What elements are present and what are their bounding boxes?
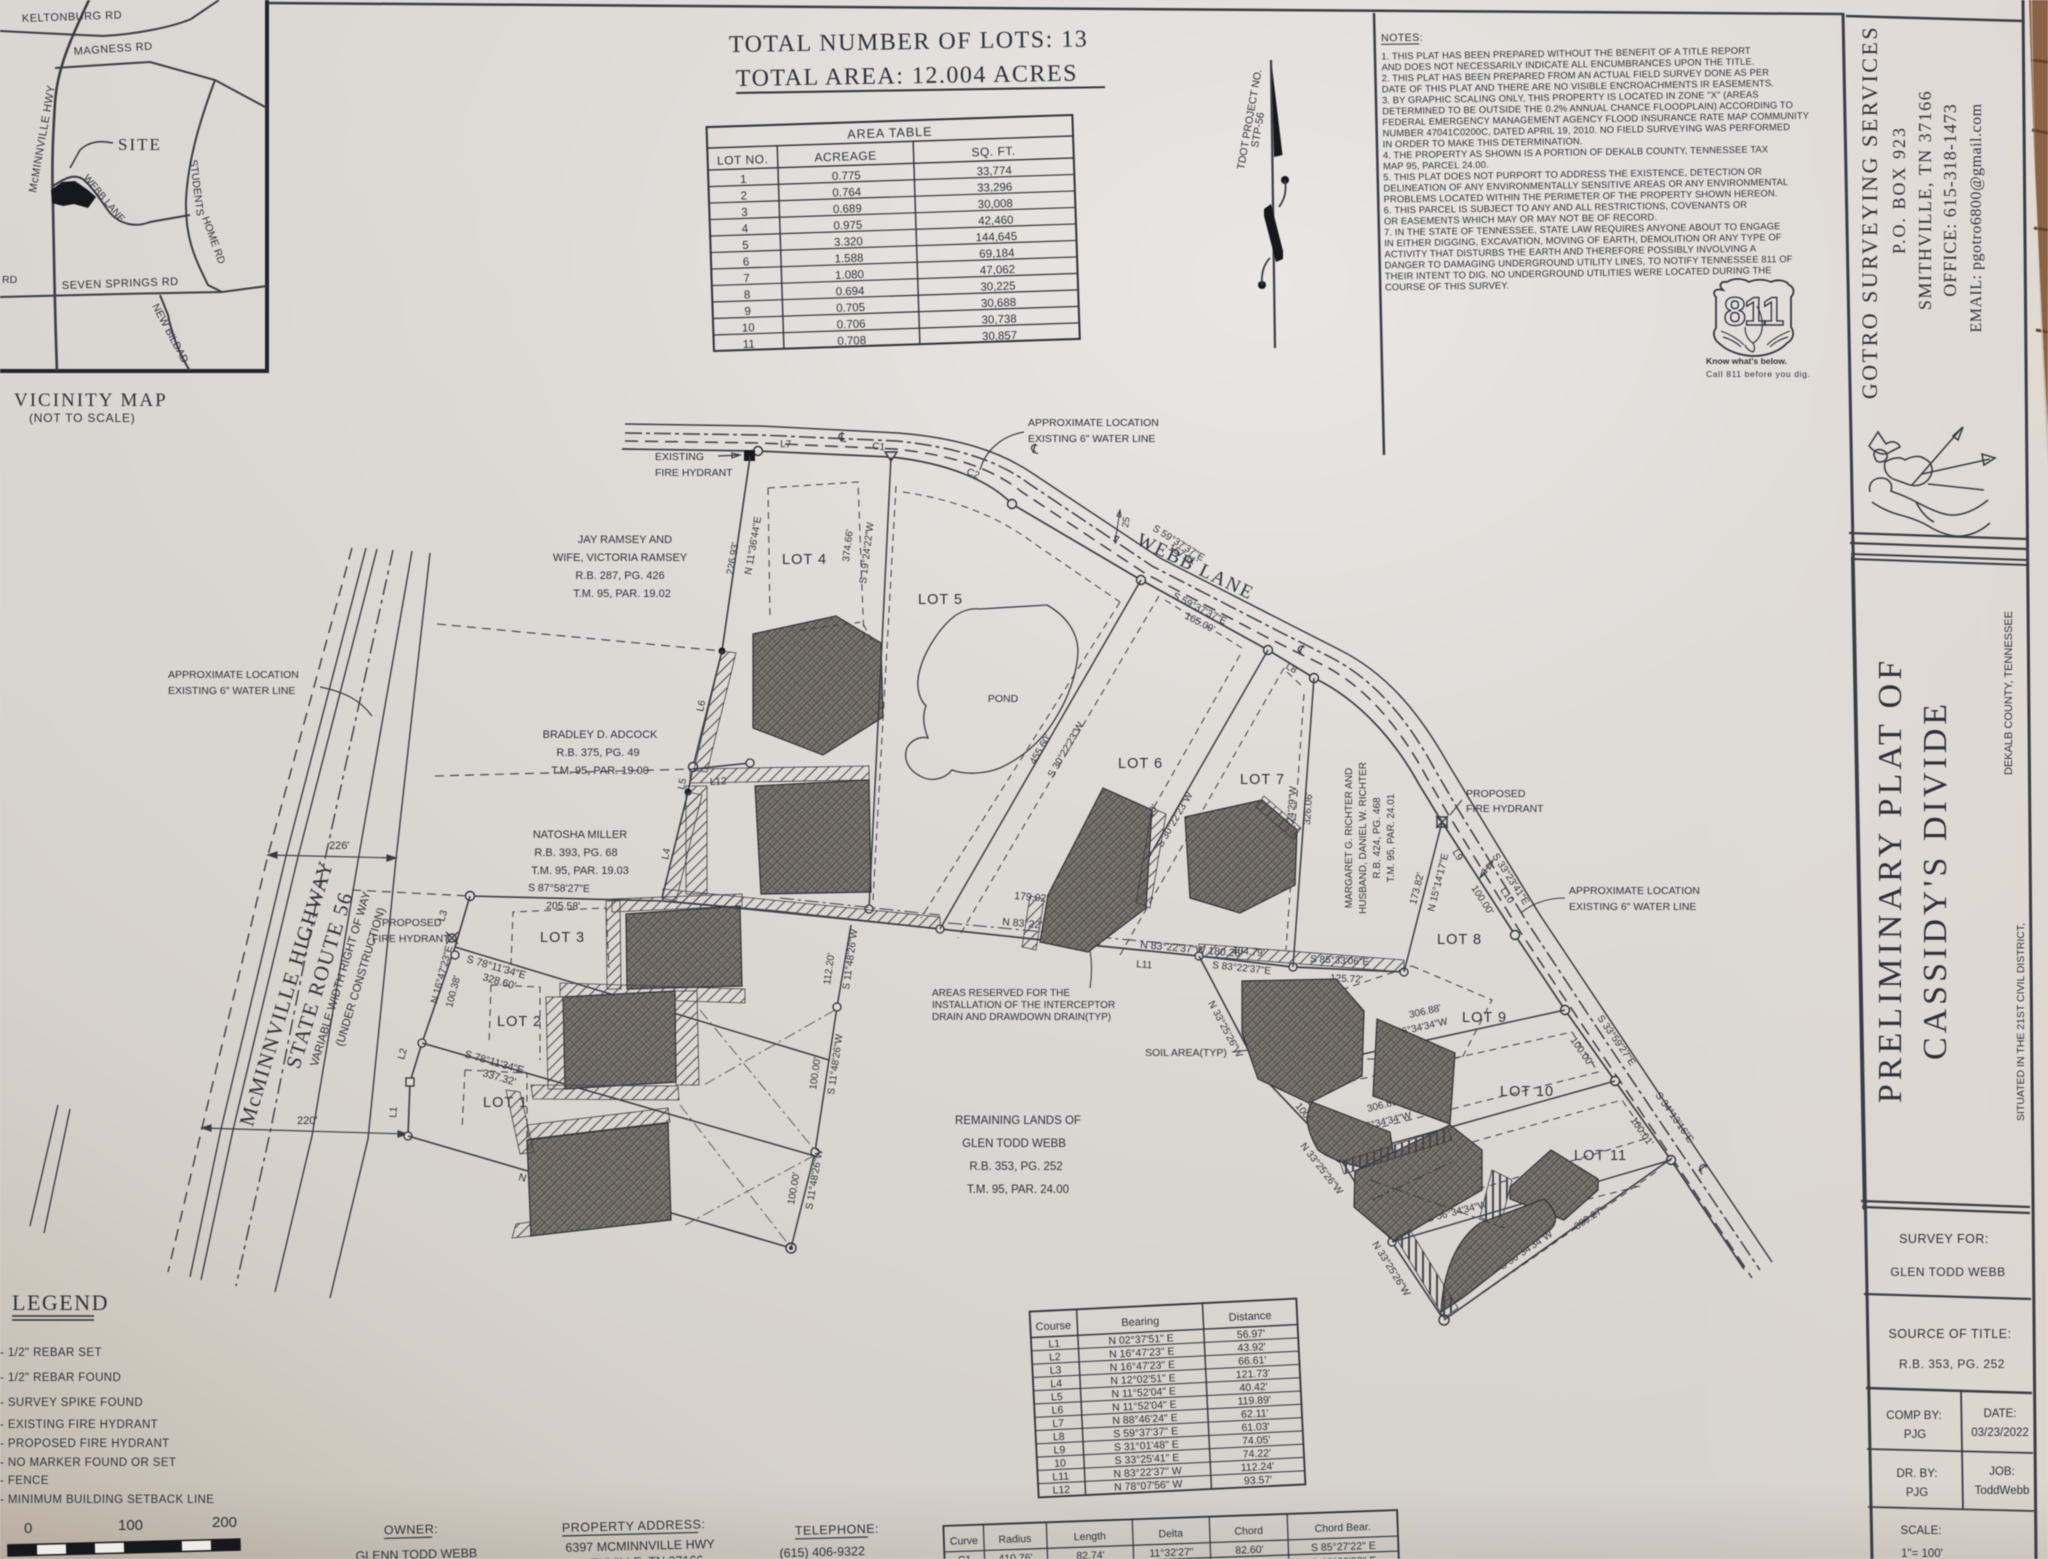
svg-text:Call 811 before you dig.: Call 811 before you dig. [1706, 369, 1811, 379]
svg-text:SCALE:: SCALE: [1901, 1525, 1942, 1537]
svg-text:L4: L4 [1050, 1378, 1062, 1391]
svg-text:7: 7 [743, 273, 750, 285]
svg-text:L11: L11 [1136, 959, 1153, 971]
svg-text:L12: L12 [710, 776, 728, 788]
svg-text:30,225: 30,225 [980, 280, 1016, 293]
svg-text:410.76': 410.76' [998, 1552, 1033, 1559]
svg-text:VICINITY MAP: VICINITY MAP [14, 390, 168, 411]
svg-text:811: 811 [1724, 290, 1784, 334]
svg-text:DATE:: DATE: [1983, 1408, 2016, 1420]
svg-text:GLEN TODD WEBB: GLEN TODD WEBB [962, 1138, 1066, 1150]
svg-text:- EXISTING FIRE HYDRANT: - EXISTING FIRE HYDRANT [0, 1419, 158, 1431]
svg-text:EXISTING 6" WATER LINE: EXISTING 6" WATER LINE [168, 685, 295, 697]
svg-text:4: 4 [742, 223, 749, 235]
svg-text:LOT 8: LOT 8 [1437, 932, 1482, 948]
svg-text:APPROXIMATE LOCATION: APPROXIMATE LOCATION [168, 669, 299, 681]
svg-text:33,296: 33,296 [977, 182, 1013, 195]
svg-text:1: 1 [740, 174, 747, 186]
svg-text:L1: L1 [1048, 1338, 1060, 1351]
svg-text:Length: Length [1074, 1530, 1107, 1543]
svg-text:T.M. 95, PAR. 24.00: T.M. 95, PAR. 24.00 [967, 1184, 1069, 1196]
svg-text:L3: L3 [1049, 1364, 1061, 1377]
svg-text:40.42': 40.42' [1239, 1381, 1268, 1394]
svg-text:APPROXIMATE LOCATION: APPROXIMATE LOCATION [1028, 417, 1159, 429]
svg-text:L8: L8 [1053, 1431, 1065, 1444]
svg-text:0.764: 0.764 [832, 187, 862, 200]
svg-text:0.706: 0.706 [837, 318, 866, 331]
svg-text:82.74': 82.74' [1076, 1549, 1105, 1559]
svg-text:OFFICE: 615-318-1473: OFFICE: 615-318-1473 [1940, 103, 1960, 297]
svg-text:9: 9 [744, 306, 751, 318]
svg-text:EMAIL: pgotro6800@gmail.com: EMAIL: pgotro6800@gmail.com [1968, 103, 1985, 332]
svg-text:93.57': 93.57' [1244, 1474, 1273, 1487]
svg-text:T.M. 95, PAR. 19.02: T.M. 95, PAR. 19.02 [573, 588, 671, 600]
svg-text:T.M. 95, PAR. 24.01: T.M. 95, PAR. 24.01 [1386, 793, 1397, 882]
svg-text:PJG: PJG [1906, 1487, 1928, 1499]
svg-text:LOT 11: LOT 11 [1574, 1148, 1627, 1164]
svg-text:56.97': 56.97' [1237, 1328, 1266, 1341]
svg-text:30,738: 30,738 [981, 313, 1017, 326]
svg-text:NOTES:: NOTES: [1381, 32, 1423, 45]
svg-text:10: 10 [742, 322, 755, 334]
svg-text:112.24': 112.24' [1241, 1461, 1275, 1475]
svg-text:LOT 9: LOT 9 [1462, 1010, 1507, 1026]
svg-text:Bearing: Bearing [1121, 1315, 1159, 1329]
svg-text:Course: Course [1035, 1320, 1071, 1334]
svg-text:LOT 7: LOT 7 [1240, 772, 1285, 788]
svg-text:LOT 6: LOT 6 [1118, 756, 1163, 772]
svg-text:47,062: 47,062 [980, 264, 1016, 277]
svg-text:Know what's below.: Know what's below. [1706, 356, 1787, 366]
svg-text:66.61': 66.61' [1238, 1354, 1267, 1367]
svg-text:3: 3 [741, 207, 748, 219]
svg-text:62.11': 62.11' [1241, 1408, 1269, 1421]
svg-text:- FENCE: - FENCE [0, 1475, 49, 1487]
svg-text:- PROPOSED FIRE HYDRANT: - PROPOSED FIRE HYDRANT [0, 1438, 170, 1450]
svg-text:43.92': 43.92' [1237, 1341, 1266, 1354]
svg-text:COURSE OF THIS SURVEY.: COURSE OF THIS SURVEY. [1385, 279, 1509, 292]
svg-text:Chord Bear.: Chord Bear. [1314, 1521, 1370, 1535]
svg-text:EXISTING: EXISTING [655, 451, 704, 463]
svg-text:0.694: 0.694 [836, 285, 866, 298]
svg-text:EXISTING 6" WATER LINE: EXISTING 6" WATER LINE [1028, 433, 1155, 445]
svg-text:LOT 2: LOT 2 [497, 1014, 542, 1030]
svg-text:- SURVEY SPIKE FOUND: - SURVEY SPIKE FOUND [0, 1397, 143, 1409]
svg-text:JAY RAMSEY AND: JAY RAMSEY AND [578, 534, 672, 546]
svg-text:FIRE HYDRANT: FIRE HYDRANT [372, 933, 450, 945]
svg-text:1.080: 1.080 [835, 269, 864, 282]
svg-text:8: 8 [744, 289, 751, 301]
svg-text:L12: L12 [1052, 1484, 1070, 1497]
svg-text:PJG: PJG [1904, 1429, 1926, 1441]
svg-text:TOTAL AREA: 12.004 ACRES: TOTAL AREA: 12.004 ACRES [736, 61, 1078, 92]
svg-text:AREAS RESERVED FOR THE: AREAS RESERVED FOR THE [932, 988, 1070, 999]
svg-text:42,460: 42,460 [978, 215, 1014, 228]
svg-text:Chord: Chord [1234, 1525, 1263, 1538]
svg-text:1"= 100': 1"= 100' [1901, 1548, 1943, 1559]
svg-text:- NO MARKER FOUND OR SET: - NO MARKER FOUND OR SET [0, 1457, 176, 1469]
svg-text:0.708: 0.708 [837, 335, 866, 348]
svg-text:69,184: 69,184 [979, 247, 1015, 260]
svg-text:LEGEND: LEGEND [12, 1290, 109, 1315]
svg-text:ACREAGE: ACREAGE [814, 149, 877, 165]
svg-text:POND: POND [988, 693, 1019, 705]
svg-text:11: 11 [743, 339, 755, 351]
svg-text:WIFE, VICTORIA RAMSEY: WIFE, VICTORIA RAMSEY [553, 552, 688, 564]
svg-text:121.73': 121.73' [1236, 1367, 1271, 1381]
svg-text:100: 100 [118, 1517, 143, 1534]
svg-text:11°32'27": 11°32'27" [1149, 1546, 1194, 1559]
svg-text:33,774: 33,774 [976, 165, 1012, 178]
svg-text:DRAIN AND DRAWDOWN DRAIN(TYP): DRAIN AND DRAWDOWN DRAIN(TYP) [932, 1012, 1111, 1023]
svg-text:82.60': 82.60' [1235, 1544, 1264, 1557]
svg-text:DEKALB COUNTY, TENNESSEE: DEKALB COUNTY, TENNESSEE [2003, 611, 2015, 775]
svg-text:C1: C1 [958, 1554, 972, 1559]
svg-text:SOIL AREA(TYP): SOIL AREA(TYP) [1145, 1047, 1227, 1059]
svg-text:R.B. 287, PG. 426: R.B. 287, PG. 426 [575, 570, 664, 582]
svg-text:CASSIDY'S DIVIDE: CASSIDY'S DIVIDE [1917, 700, 1954, 1060]
svg-text:L1: L1 [388, 1106, 400, 1118]
svg-text:MARGARET G. RICHTER AND: MARGARET G. RICHTER AND [1344, 768, 1355, 908]
svg-text:LOT 5: LOT 5 [918, 592, 963, 608]
svg-text:25: 25 [1120, 516, 1133, 528]
svg-text:SITUATED IN THE 21ST CIVIL DIS: SITUATED IN THE 21ST CIVIL DISTRICT, [2015, 923, 2027, 1121]
svg-text:C1: C1 [872, 441, 886, 453]
svg-text:PRELIMINARY PLAT OF: PRELIMINARY PLAT OF [1872, 657, 1909, 1103]
svg-text:COMP BY:: COMP BY: [1886, 1410, 1941, 1422]
svg-text:APPROXIMATE LOCATION: APPROXIMATE LOCATION [1569, 885, 1700, 897]
svg-text:Distance: Distance [1228, 1310, 1271, 1324]
svg-text:(NOT TO SCALE): (NOT TO SCALE) [29, 411, 136, 425]
svg-text:GOTRO SURVEYING SERVICES: GOTRO SURVEYING SERVICES [1857, 25, 1882, 399]
svg-text:SURVEY FOR:: SURVEY FOR: [1899, 1232, 1989, 1246]
svg-text:T.M. 95, PAR. 19.03: T.M. 95, PAR. 19.03 [531, 865, 629, 877]
svg-text:LOT NO.: LOT NO. [717, 152, 769, 168]
svg-text:0: 0 [24, 1520, 32, 1537]
svg-text:SOURCE OF TITLE:: SOURCE OF TITLE: [1888, 1327, 2011, 1341]
svg-text:5: 5 [742, 240, 749, 252]
svg-text:HUSBAND, DANIEL W. RICHTER: HUSBAND, DANIEL W. RICHTER [1358, 762, 1369, 914]
svg-text:2: 2 [740, 190, 747, 202]
svg-text:R.B. 424, PG. 468: R.B. 424, PG. 468 [1372, 797, 1383, 879]
svg-text:30,008: 30,008 [977, 198, 1013, 211]
svg-text:(615) 406-9322: (615) 406-9322 [779, 1544, 865, 1559]
svg-text:FIRE HYDRANT: FIRE HYDRANT [655, 467, 733, 479]
svg-text:10: 10 [1054, 1457, 1066, 1470]
svg-text:RD: RD [2, 274, 18, 286]
svg-text:0.975: 0.975 [833, 220, 862, 233]
svg-text:- MINIMUM BUILDING SETBACK LIN: - MINIMUM BUILDING SETBACK LINE [0, 1494, 214, 1506]
svg-text:30,857: 30,857 [982, 330, 1018, 343]
svg-text:INSTALLATION OF THE INTERCEPTO: INSTALLATION OF THE INTERCEPTOR [932, 1000, 1115, 1011]
svg-text:SITE: SITE [118, 135, 162, 154]
svg-text:30,688: 30,688 [981, 297, 1017, 310]
svg-text:220': 220' [297, 1115, 317, 1127]
svg-text:0.775: 0.775 [832, 170, 861, 183]
svg-text:Delta: Delta [1158, 1528, 1183, 1541]
svg-text:NATOSHA MILLER: NATOSHA MILLER [533, 829, 627, 841]
svg-text:AREA TABLE: AREA TABLE [847, 125, 933, 142]
svg-text:226': 226' [329, 840, 349, 852]
svg-text:ToddWebb: ToddWebb [1975, 1485, 2030, 1497]
svg-text:144,645: 144,645 [975, 231, 1017, 244]
svg-text:JOB:: JOB: [1989, 1466, 2015, 1478]
svg-text:L9: L9 [1053, 1444, 1065, 1457]
svg-text:119.89': 119.89' [1237, 1394, 1271, 1408]
svg-text:61.03': 61.03' [1241, 1421, 1270, 1434]
svg-text:L11: L11 [1052, 1471, 1069, 1484]
svg-text:L2: L2 [1049, 1351, 1061, 1364]
svg-text:GLEN TODD WEBB: GLEN TODD WEBB [1890, 1265, 2005, 1279]
svg-text:LOT 3: LOT 3 [540, 930, 585, 946]
svg-text:Curve: Curve [950, 1535, 979, 1548]
svg-text:0.689: 0.689 [833, 203, 862, 216]
svg-text:SQ. FT.: SQ. FT. [971, 144, 1016, 159]
svg-text:R.B. 375, PG. 49: R.B. 375, PG. 49 [556, 747, 639, 759]
svg-text:REMAINING LANDS OF: REMAINING LANDS OF [955, 1115, 1081, 1127]
svg-text:- 1/2" REBAR FOUND: - 1/2" REBAR FOUND [0, 1372, 121, 1384]
svg-text:L6: L6 [1051, 1404, 1063, 1417]
svg-text:Radius: Radius [998, 1533, 1031, 1546]
svg-text:LOT 4: LOT 4 [782, 552, 827, 568]
svg-text:R.B. 393, PG. 68: R.B. 393, PG. 68 [534, 847, 617, 859]
svg-text:EXISTING 6" WATER LINE: EXISTING 6" WATER LINE [1569, 901, 1696, 913]
svg-text:PROPOSED: PROPOSED [382, 917, 442, 929]
svg-text:GLENN TODD WEBB: GLENN TODD WEBB [355, 1546, 477, 1559]
svg-text:200: 200 [212, 1514, 237, 1531]
svg-text:L5: L5 [1051, 1391, 1063, 1404]
svg-text:FIRE HYDRANT: FIRE HYDRANT [1466, 803, 1544, 815]
svg-text:BRADLEY D. ADCOCK: BRADLEY D. ADCOCK [543, 729, 658, 741]
svg-text:TELEPHONE:: TELEPHONE: [795, 1522, 880, 1538]
svg-text:74.22': 74.22' [1242, 1447, 1271, 1460]
svg-text:PROPOSED: PROPOSED [1466, 788, 1526, 800]
svg-text:SMITHVILLE, TN 37166: SMITHVILLE, TN 37166 [1915, 90, 1935, 310]
svg-text:6: 6 [743, 256, 750, 268]
svg-text:OWNER:: OWNER: [384, 1522, 439, 1537]
svg-text:LOT 10: LOT 10 [1500, 1084, 1554, 1100]
svg-text:74.05': 74.05' [1242, 1434, 1271, 1447]
svg-text:L7: L7 [780, 439, 792, 450]
svg-text:L7: L7 [1052, 1418, 1064, 1431]
svg-text:R.B. 353, PG. 252: R.B. 353, PG. 252 [969, 1161, 1062, 1173]
svg-text:- 1/2" REBAR SET: - 1/2" REBAR SET [0, 1347, 102, 1359]
svg-text:326.06': 326.06' [1302, 792, 1315, 825]
svg-text:S 85°27'22" E: S 85°27'22" E [1311, 1540, 1376, 1554]
svg-text:DR. BY:: DR. BY: [1897, 1468, 1938, 1480]
svg-text:3.320: 3.320 [834, 236, 863, 249]
svg-text:1.588: 1.588 [834, 253, 863, 266]
svg-text:205.58': 205.58' [546, 900, 580, 913]
svg-text:0.705: 0.705 [836, 302, 865, 315]
svg-text:03/23/2022: 03/23/2022 [1971, 1427, 2029, 1439]
svg-text:T.M. 95, PAR. 19.00: T.M. 95, PAR. 19.00 [551, 765, 649, 777]
svg-text:P.O. BOX 923: P.O. BOX 923 [1889, 126, 1909, 254]
svg-text:R.B. 353, PG. 252: R.B. 353, PG. 252 [1899, 1357, 2005, 1371]
svg-text:S 87°58'27"E: S 87°58'27"E [528, 882, 590, 895]
